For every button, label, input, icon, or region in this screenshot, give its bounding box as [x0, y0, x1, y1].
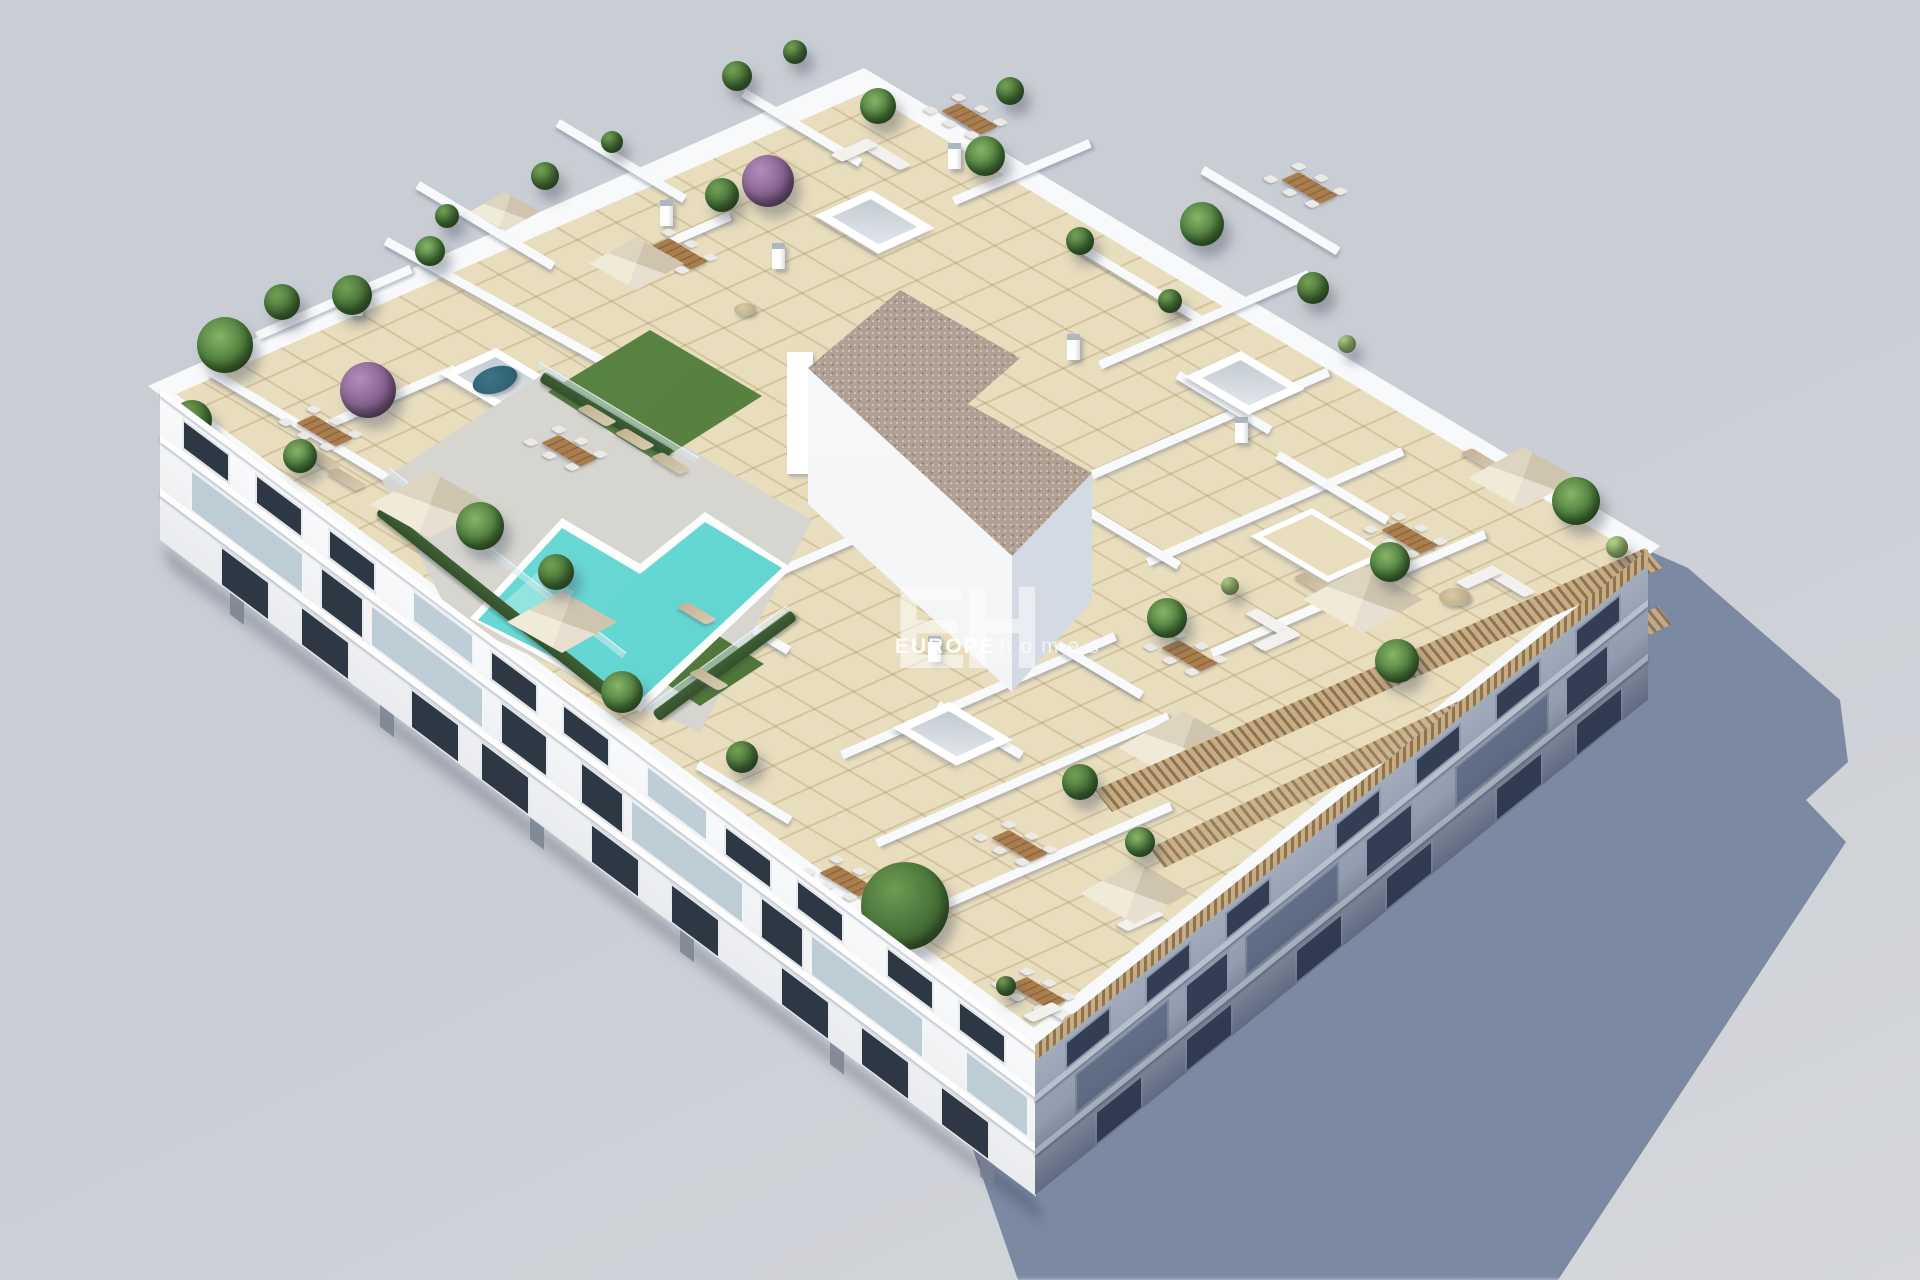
palm-plant — [283, 439, 317, 473]
green-shrub — [705, 178, 739, 212]
palm-plant — [1370, 542, 1410, 582]
palm-plant — [1147, 598, 1187, 638]
purple-bush — [742, 155, 794, 207]
palm-plant — [1552, 477, 1600, 525]
palm-plant — [601, 671, 643, 713]
green-shrub — [531, 162, 559, 190]
green-shrub — [1297, 272, 1329, 304]
palm-plant — [1180, 202, 1224, 246]
green-shrub — [726, 741, 758, 773]
light-shrub — [1606, 536, 1628, 558]
palm-plant — [456, 502, 504, 550]
green-shrub — [996, 976, 1016, 996]
palm-plant — [1125, 827, 1155, 857]
green-shrub — [1158, 289, 1182, 313]
watermark-brand-light: homes — [1000, 635, 1108, 658]
light-shrub — [1221, 577, 1239, 595]
chimney — [772, 243, 785, 269]
green-shrub — [722, 61, 752, 91]
palm-plant — [965, 136, 1005, 176]
round-table — [734, 303, 756, 316]
watermark: EH EUROPEhomes — [893, 588, 1037, 669]
green-shrub — [996, 77, 1024, 105]
palm-plant — [1375, 639, 1419, 683]
green-shrub — [538, 554, 574, 590]
architectural-render: EH EUROPEhomes — [0, 0, 1920, 1280]
palm-plant — [197, 317, 253, 373]
palm-plant — [860, 88, 896, 124]
watermark-brand: EUROPEhomes — [895, 635, 1108, 659]
green-shrub — [601, 131, 623, 153]
green-shrub — [783, 40, 807, 64]
chimney — [948, 143, 961, 169]
green-shrub — [264, 284, 300, 320]
green-shrub — [1062, 764, 1098, 800]
green-shrub — [435, 204, 459, 228]
green-shrub — [1066, 227, 1094, 255]
palm-plant — [415, 236, 445, 266]
chimney — [1235, 417, 1248, 443]
chimney — [1067, 334, 1080, 360]
round-table — [1439, 588, 1471, 606]
green-shrub — [332, 275, 372, 315]
chimney — [660, 200, 673, 226]
watermark-brand-bold: EUROPE — [895, 635, 996, 658]
light-shrub — [1338, 335, 1356, 353]
purple-bush — [340, 362, 396, 418]
